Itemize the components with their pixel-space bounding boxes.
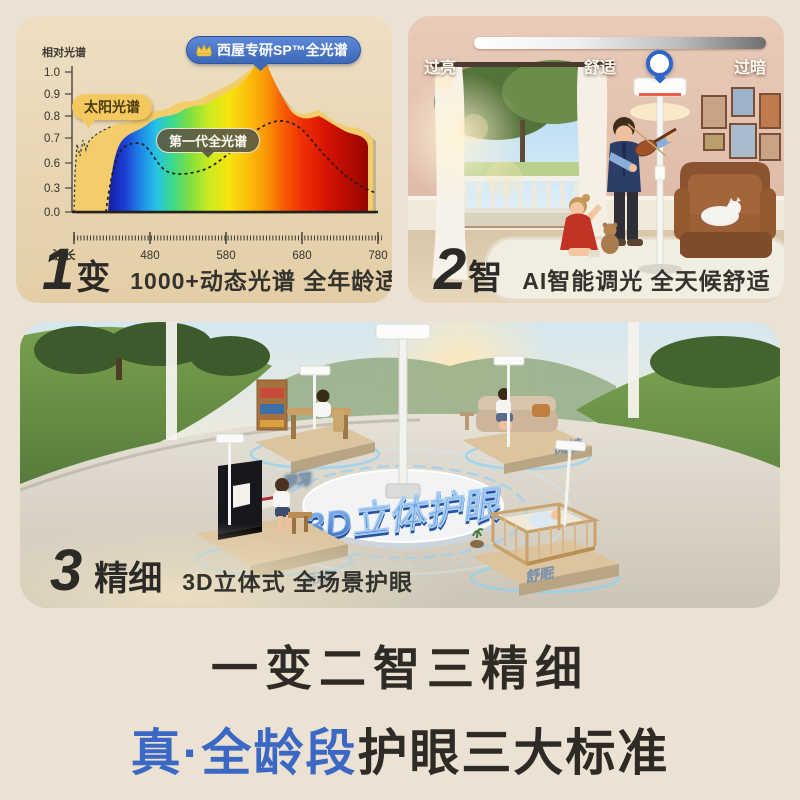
picture-frames [702, 88, 780, 160]
lens-flare [486, 160, 522, 196]
feature-index-2: 2 [434, 241, 468, 299]
brightness-slider-track[interactable] [474, 37, 766, 49]
sun-spectrum-badge-label: 太阳光谱 [84, 97, 140, 117]
feature-keyword-3: 精细 [94, 562, 162, 596]
headline-slogan-rest: 护眼三大标准 [357, 725, 669, 781]
sun-spectrum-badge: 太阳光谱 [72, 94, 152, 120]
brightness-slider-handle[interactable] [646, 50, 673, 77]
page: { "page": { "background": "#ebe2d3" }, "… [0, 0, 800, 800]
svg-text:0.0: 0.0 [44, 207, 60, 219]
scene-panel: 3D立体护眼 3D立体护眼 学习 [20, 322, 780, 608]
svg-text:0.8: 0.8 [44, 111, 60, 123]
spectrum-panel: 相对光谱 1.0 0.9 0.8 0.7 0.6 0.3 0.0 [16, 16, 392, 303]
lens-flare [460, 114, 488, 142]
svg-text:1.0: 1.0 [44, 67, 60, 79]
svg-text:0.3: 0.3 [44, 183, 60, 195]
gen1-spectrum-badge-label: 第一代全光谱 [169, 131, 247, 150]
y-axis-title: 相对光谱 [42, 45, 86, 59]
slider-label-too-bright: 过亮 [424, 54, 456, 78]
crown-icon [195, 43, 213, 57]
brightness-slider: 过亮 舒适 过暗 [408, 16, 784, 86]
sp-spectrum-badge-label: 西屋专研SP™全光谱 [217, 40, 348, 60]
feature-index-3: 3 [50, 542, 84, 600]
headline-summary: 一变二智三精细 [0, 630, 800, 699]
feature-caption-1: 1000+动态光谱 全年龄适配 [130, 262, 392, 296]
sp-spectrum-badge: 西屋专研SP™全光谱 [186, 36, 361, 64]
footer: 一变二智三精细 真·全龄段护眼三大标准 [0, 630, 800, 785]
feature-caption-3: 3D立体式 全场景护眼 [182, 563, 413, 597]
feature-index-1: 1 [42, 241, 76, 299]
slider-label-too-dark: 过暗 [734, 54, 766, 78]
svg-text:0.7: 0.7 [44, 133, 60, 145]
window-mullion [628, 322, 639, 418]
headline-slogan: 真·全龄段护眼三大标准 [0, 713, 800, 785]
feature-keyword-2: 智 [468, 261, 502, 295]
y-tick-labels: 1.0 0.9 0.8 0.7 0.6 0.3 0.0 [44, 67, 60, 219]
dimming-panel: 过亮 舒适 过暗 2 智 AI智能调光 全天候舒适 [408, 16, 784, 303]
feature-keyword-1: 变 [76, 261, 110, 295]
svg-text:0.6: 0.6 [44, 158, 60, 170]
feature-caption-2: AI智能调光 全天候舒适 [522, 262, 770, 296]
window-mullion [166, 322, 177, 440]
scene-caption-row: 3 精细 3D立体式 全场景护眼 [50, 542, 413, 600]
slider-label-comfortable: 舒适 [584, 54, 616, 78]
gen1-spectrum-badge: 第一代全光谱 [156, 128, 260, 153]
headline-slogan-highlight: 真·全龄段 [131, 725, 358, 781]
spectrum-caption-row: 1 变 1000+动态光谱 全年龄适配 [42, 241, 392, 299]
dimming-caption-row: 2 智 AI智能调光 全天候舒适 [434, 241, 771, 299]
y-axis-ticks [65, 72, 72, 212]
svg-text:0.9: 0.9 [44, 89, 60, 101]
